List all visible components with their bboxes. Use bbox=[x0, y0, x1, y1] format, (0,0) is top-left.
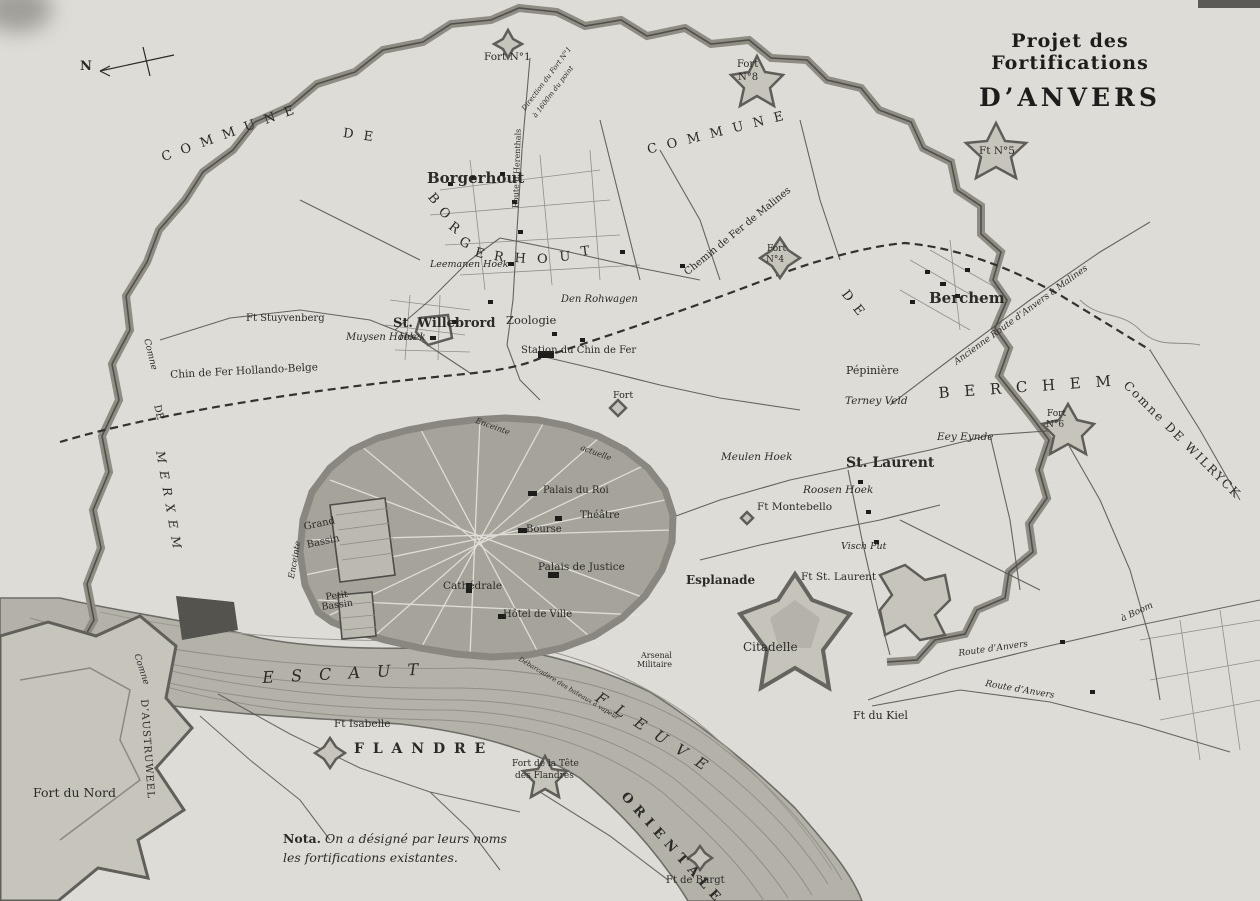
fort-no4-line2: N°4 bbox=[766, 256, 784, 265]
roosen-hoek: Roosen Hoek bbox=[803, 485, 873, 496]
fort-no8-line1: Fort bbox=[737, 60, 758, 70]
petit-bassin-line2: Bassin bbox=[321, 599, 354, 613]
eey-eynde: Eey Eynde bbox=[937, 432, 993, 443]
fort-no6-line1: Fort bbox=[1047, 410, 1066, 419]
enceinte-actuelle-2: actuelle bbox=[579, 444, 612, 463]
grand-bassin-line2: Bassin bbox=[306, 534, 341, 551]
borgerhout-arc-r1: R bbox=[446, 220, 462, 236]
fort-no6-line2: N°6 bbox=[1046, 421, 1064, 430]
route-anvers-2: Route d’Anvers bbox=[984, 680, 1055, 701]
escaut: E S C A U T bbox=[262, 662, 425, 686]
commune-merxem-arc-1: C O M M U N E bbox=[160, 103, 299, 164]
fort-no8-line2: N°8 bbox=[738, 73, 758, 83]
borgerhout-arc-t: T bbox=[580, 245, 590, 259]
ft-stuyvenberg: Ft Stuyvenberg bbox=[246, 314, 325, 324]
hotel-de-ville: Hôtel de Ville bbox=[503, 610, 572, 620]
fort-du-nord: Fort du Nord bbox=[33, 787, 116, 800]
esplanade: Esplanade bbox=[686, 574, 755, 586]
borgerhout-arc-h: H bbox=[514, 252, 526, 266]
enceinte-west: Enceinte bbox=[288, 540, 303, 579]
austruweel: D’AUSTRUWEEL bbox=[138, 699, 155, 799]
st-laurent-town: St. Laurent bbox=[846, 456, 934, 470]
fort-label: Fort bbox=[613, 391, 633, 401]
wilryck: Comne DE WILRYCK bbox=[1122, 379, 1244, 501]
leemanen-hoek: Leemanen Hoek bbox=[430, 260, 509, 270]
st-willebrord: St. Willebrord bbox=[393, 317, 495, 330]
theatre: Théâtre bbox=[580, 511, 620, 521]
borgerhout-arc-g: G bbox=[457, 235, 472, 251]
north-label: N bbox=[80, 60, 92, 73]
note-line2: les fortifications existantes. bbox=[283, 850, 507, 865]
map-labels: NC O M M U N ED EC O M M U N ED EB E R C… bbox=[0, 0, 1260, 901]
commune-merxem-arc-2: D E bbox=[342, 127, 377, 144]
palais-de-justice: Palais de Justice bbox=[538, 562, 625, 573]
arsenal-line1: Arsenal bbox=[641, 652, 672, 660]
visch-put: Visch Put bbox=[841, 542, 886, 552]
map-title-line2: D’ANVERS bbox=[930, 83, 1210, 112]
merxem-comne: Comne bbox=[141, 338, 157, 371]
enceinte-actuelle-1: Enceinte bbox=[474, 417, 510, 437]
borgerhout-arc-u: U bbox=[559, 250, 571, 264]
map-note: Nota. On a désigné par leurs noms les fo… bbox=[283, 831, 507, 865]
fleuve: F L E U V E bbox=[593, 690, 713, 775]
ft-montebello: Ft Montebello bbox=[757, 502, 832, 513]
palais-du-roi: Palais du Roi bbox=[543, 486, 609, 496]
note-lead: Nota. bbox=[283, 831, 321, 846]
route-anvers-1: Route d’Anvers bbox=[958, 640, 1029, 659]
ft-de-burgt: Ft de Burgt bbox=[666, 876, 725, 886]
edge-mark bbox=[1198, 0, 1260, 8]
meulen-hoek: Meulen Hoek bbox=[721, 452, 792, 463]
pepiniere: Pépinière bbox=[846, 365, 899, 376]
borgerhout-town: Borgerhout bbox=[427, 171, 524, 186]
zoologie: Zoologie bbox=[506, 315, 556, 327]
route-a-boom: à Boom bbox=[1120, 602, 1155, 625]
note-line1: On a désigné par leurs noms bbox=[325, 831, 507, 846]
map-title-line1: Projet des Fortifications bbox=[930, 30, 1210, 74]
citadelle: Citadelle bbox=[743, 641, 798, 653]
ft-no5: Ft N°5 bbox=[979, 146, 1015, 157]
ft-isabelle: Ft Isabelle bbox=[334, 719, 391, 730]
terney-veld: Terney Veld bbox=[845, 396, 908, 407]
muysen-hoek: Muysen Hoek bbox=[346, 333, 416, 343]
bourse: Bourse bbox=[526, 525, 562, 535]
fort-tete-flandres-line2: des Flandres bbox=[515, 772, 574, 781]
fort-no1: Fort N°1 bbox=[484, 52, 531, 63]
berchem-town: Berchem bbox=[929, 291, 1005, 306]
chemin-hollando-belge: Chin de Fer Hollando-Belge bbox=[170, 362, 318, 380]
austruweel-comne: Comne bbox=[131, 653, 149, 686]
commune-berchem-de: D E bbox=[839, 288, 868, 320]
merxem-de: DE bbox=[151, 404, 164, 421]
station-chemin-de-fer: Station du Chin de Fer bbox=[521, 346, 636, 356]
commune-borgerhout-arc: C O M M U N E bbox=[646, 109, 788, 156]
map-antwerp-fortifications: NC O M M U N ED EC O M M U N ED EB E R C… bbox=[0, 0, 1260, 901]
ft-st-laurent: Ft St. Laurent bbox=[801, 572, 876, 583]
borgerhout-arc-o2: O bbox=[537, 253, 548, 266]
cathedrale: Cathédrale bbox=[443, 581, 502, 592]
flandre: F L A N D R E bbox=[354, 742, 487, 756]
arsenal-line2: Militaire bbox=[637, 661, 672, 669]
route-herenthals: Route d’Herenthals bbox=[512, 129, 523, 209]
fort-tete-flandres-line1: Fort de la Tête bbox=[512, 760, 579, 769]
ft-du-kiel: Ft du Kiel bbox=[853, 710, 908, 721]
den-rohwagen: Den Rohwagen bbox=[561, 295, 638, 305]
ancienne-route-malines: Ancienne Route d’Anvers à Malines bbox=[953, 264, 1090, 367]
berchem-arc: B E R C H E M bbox=[938, 374, 1116, 401]
map-title: Projet des Fortifications D’ANVERS bbox=[930, 30, 1210, 112]
fort-no4-line1: Fort bbox=[767, 245, 786, 254]
borgerhout-arc-o1: O bbox=[436, 205, 453, 222]
grand-bassin-line1: Grand bbox=[303, 516, 336, 532]
borgerhout-arc-b: B bbox=[425, 191, 441, 207]
merxem-arc: M E R X E M bbox=[154, 450, 183, 551]
debarcadere: Débarcadère des bateaux à vapeur bbox=[518, 656, 620, 721]
